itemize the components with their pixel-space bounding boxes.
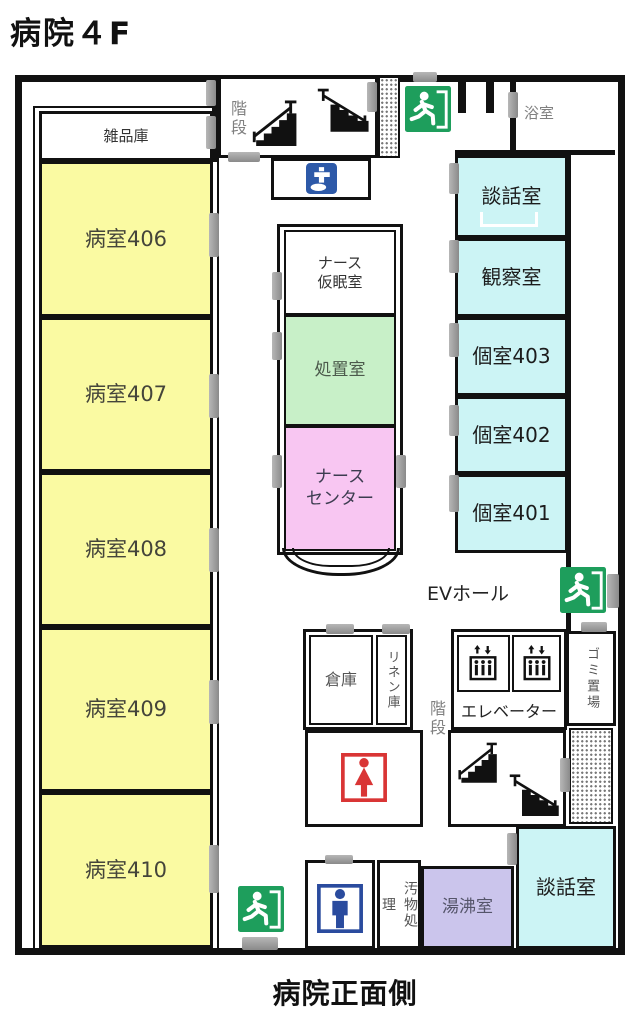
emergency-exit-icon-bottom [238, 886, 284, 932]
room-nurse-nap-label-2: 仮眠室 [317, 273, 362, 292]
room-408: 病室408 [39, 472, 213, 627]
room-406: 病室406 [39, 161, 213, 317]
door-stairwell-top-bottom [228, 152, 260, 162]
room-408-label: 病室408 [85, 536, 167, 562]
room-410-label: 病室410 [85, 857, 167, 883]
door-room-410 [209, 845, 219, 893]
room-402: 個室402 [455, 396, 568, 474]
room-soko-label: 倉庫 [325, 670, 357, 690]
room-406-label: 病室406 [85, 226, 167, 252]
bath-bottom-wall [455, 150, 615, 155]
room-nurse-nap-label-1: ナース [318, 254, 362, 273]
caption-front-side: 病院正面側 [230, 972, 460, 1012]
shaft-hatch-top [378, 76, 400, 158]
room-yuwakashi: 湯沸室 [421, 866, 514, 949]
ev-hall-label: EVホール [427, 579, 509, 606]
stairs-down-icon-bottom [508, 772, 564, 818]
stairs-up-icon-bottom [458, 741, 512, 784]
room-kansatsu: 観察室 [455, 238, 568, 317]
door-linen [382, 624, 410, 634]
room-zappinko-label: 雑品庫 [103, 127, 148, 146]
room-410: 病室410 [39, 792, 213, 948]
door-right-wall-exit [607, 574, 619, 608]
room-nurse-center-label-2: センター [306, 489, 374, 510]
room-409: 病室409 [39, 627, 213, 792]
door-bottom-wall-exit [242, 937, 278, 950]
room-zappinko: 雑品庫 [39, 111, 213, 161]
bath-stall-wall-2 [486, 80, 494, 113]
door-nurse-nap [272, 272, 282, 300]
bathroom-label: 浴室 [524, 102, 554, 123]
door-room-409 [209, 680, 219, 724]
room-407-label: 病室407 [85, 381, 167, 407]
male-toilet-icon [317, 884, 363, 933]
emergency-exit-icon-top [405, 86, 451, 132]
door-nurse-center-right [396, 455, 406, 488]
emergency-exit-icon-right [560, 567, 606, 613]
shaft-hatch-bottom [569, 728, 613, 824]
room-yuwakashi-label: 湯沸室 [442, 897, 493, 918]
room-obutsu: 汚物処理 [377, 860, 421, 949]
door-room-408 [209, 528, 219, 572]
stairs-up-icon [252, 100, 314, 146]
door-room-407 [209, 374, 219, 418]
stairwell-bottom-label: 階段 [424, 700, 448, 762]
door-401 [449, 475, 459, 512]
room-linen-label: リネン庫 [383, 650, 399, 710]
room-407: 病室407 [39, 317, 213, 472]
room-danwa-bottom: 談話室 [516, 826, 616, 949]
door-danwa-top [449, 163, 459, 194]
door-shochi [272, 332, 282, 360]
door-zappinko [206, 116, 216, 149]
room-gomi-label: ゴミ置場 [583, 647, 599, 711]
door-top-wall [413, 72, 437, 82]
room-shochi-label: 処置室 [315, 360, 366, 381]
door-bathroom [508, 92, 518, 118]
room-shochi: 処置室 [284, 315, 396, 426]
door-kansatsu [449, 240, 459, 273]
right-corridor-wall [566, 155, 571, 633]
door-403 [449, 323, 459, 357]
stairwell-top-label: 階段 [227, 87, 247, 151]
door-male-toilet [325, 855, 353, 864]
door-soko [326, 624, 354, 634]
room-danwa-bottom-label: 談話室 [536, 875, 596, 900]
room-403: 個室403 [455, 317, 568, 396]
hand-wash-icon [306, 163, 337, 194]
door-402 [449, 405, 459, 436]
female-toilet-icon [341, 753, 387, 802]
door-gomi [581, 622, 607, 632]
elevator-icon-1 [466, 641, 500, 685]
elevator-icon-2 [520, 641, 554, 685]
room-gomi: ゴミ置場 [566, 631, 616, 726]
room-kansatsu-label: 観察室 [482, 265, 542, 290]
room-linen: リネン庫 [376, 635, 407, 725]
door-room-406 [209, 213, 219, 257]
room-danwa-top-label: 談話室 [482, 184, 542, 209]
room-nurse-nap: ナース 仮眠室 [284, 230, 396, 315]
room-obutsu-label: 汚物処理 [377, 876, 421, 934]
room-409-label: 病室409 [85, 696, 167, 722]
page-title: 病院４F [10, 8, 132, 53]
room-401-label: 個室401 [472, 501, 550, 526]
room-nurse-center: ナース センター [284, 426, 396, 551]
room-nurse-center-label-1: ナース [315, 467, 365, 488]
door-corridor-top-1 [206, 80, 216, 106]
sofa-outline [480, 212, 538, 227]
room-402-label: 個室402 [472, 423, 550, 448]
door-nurse-center-left [272, 455, 282, 488]
room-soko: 倉庫 [309, 635, 373, 725]
door-danwa-bottom [507, 833, 517, 865]
room-401: 個室401 [455, 474, 568, 553]
room-403-label: 個室403 [472, 344, 550, 369]
bath-stall-wall-1 [458, 80, 466, 113]
elevator-label: エレベーター [453, 698, 565, 722]
stairs-down-icon [316, 88, 374, 132]
